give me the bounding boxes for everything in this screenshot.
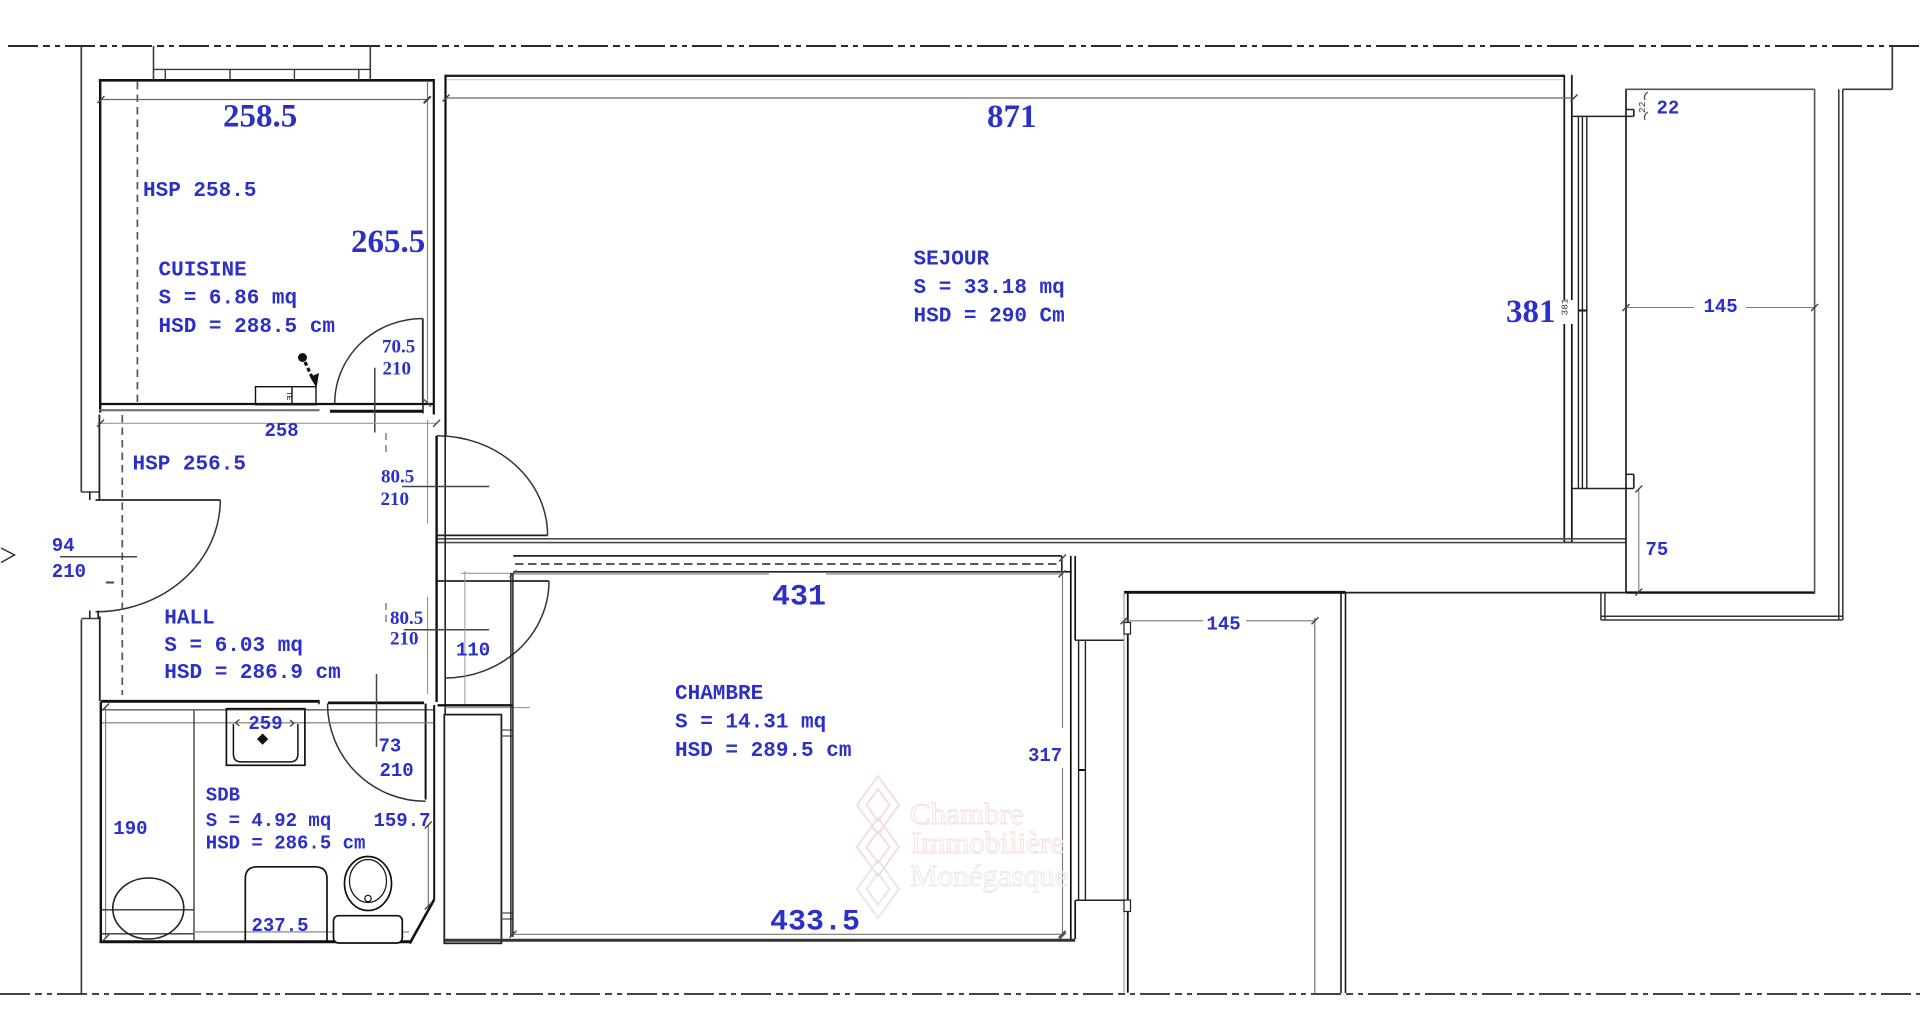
svg-text:70.5: 70.5: [382, 337, 415, 358]
svg-text:94: 94: [52, 535, 75, 557]
svg-text:S = 14.31 mq: S = 14.31 mq: [675, 712, 826, 735]
svg-text:Immobilière: Immobilière: [911, 825, 1064, 860]
svg-text:TE: TE: [284, 391, 293, 401]
svg-text:HSD = 288.5 cm: HSD = 288.5 cm: [159, 316, 335, 339]
svg-text:210: 210: [381, 489, 410, 510]
svg-text:HALL: HALL: [164, 608, 214, 631]
svg-text:145: 145: [1704, 296, 1738, 318]
svg-text:CHAMBRE: CHAMBRE: [675, 683, 763, 706]
svg-text:190: 190: [113, 818, 147, 840]
svg-text:HSD = 290 Cm: HSD = 290 Cm: [914, 306, 1065, 329]
svg-text:80.5: 80.5: [381, 467, 414, 488]
svg-text:S = 6.86 mq: S = 6.86 mq: [159, 288, 298, 311]
svg-text:22: 22: [1657, 98, 1680, 120]
svg-text:HSD = 286.9 cm: HSD = 286.9 cm: [164, 662, 340, 685]
svg-text:Monégasque: Monégasque: [910, 858, 1068, 893]
svg-text:145: 145: [1207, 614, 1241, 636]
svg-text:CUISINE: CUISINE: [159, 259, 247, 282]
svg-text:HSP 258.5: HSP 258.5: [143, 180, 256, 203]
svg-text:210: 210: [380, 760, 414, 782]
svg-text:210: 210: [383, 359, 412, 380]
svg-text:258.5: 258.5: [223, 99, 297, 135]
svg-text:210: 210: [52, 561, 86, 583]
svg-text:431: 431: [772, 581, 826, 615]
svg-text:HSD = 286.5 cm: HSD = 286.5 cm: [206, 832, 366, 854]
svg-text:317: 317: [1028, 745, 1062, 767]
svg-text:159.7: 159.7: [374, 810, 431, 832]
svg-text:265.5: 265.5: [351, 224, 425, 260]
svg-text:80.5: 80.5: [390, 608, 423, 629]
svg-text:259: 259: [248, 713, 282, 735]
svg-text:SEJOUR: SEJOUR: [914, 249, 990, 272]
svg-text:258: 258: [265, 420, 299, 442]
svg-text:S = 6.03 mq: S = 6.03 mq: [164, 635, 303, 658]
svg-text:110: 110: [456, 640, 490, 662]
svg-text:73: 73: [379, 736, 402, 758]
svg-text:237.5: 237.5: [252, 915, 309, 937]
svg-text:381: 381: [1506, 294, 1556, 330]
svg-text:S = 33.18 mq: S = 33.18 mq: [914, 277, 1065, 300]
svg-text:871: 871: [987, 99, 1037, 135]
svg-text:22: 22: [1637, 101, 1648, 113]
svg-text:HSD = 289.5 cm: HSD = 289.5 cm: [675, 740, 851, 763]
svg-text:SDB: SDB: [206, 784, 240, 806]
svg-text:381: 381: [1560, 298, 1571, 315]
svg-text:S = 4.92 mq: S = 4.92 mq: [206, 810, 331, 832]
svg-text:HSP 256.5: HSP 256.5: [133, 454, 246, 477]
svg-text:75: 75: [1646, 539, 1669, 561]
svg-text:433.5: 433.5: [770, 906, 860, 940]
svg-text:210: 210: [390, 629, 419, 650]
